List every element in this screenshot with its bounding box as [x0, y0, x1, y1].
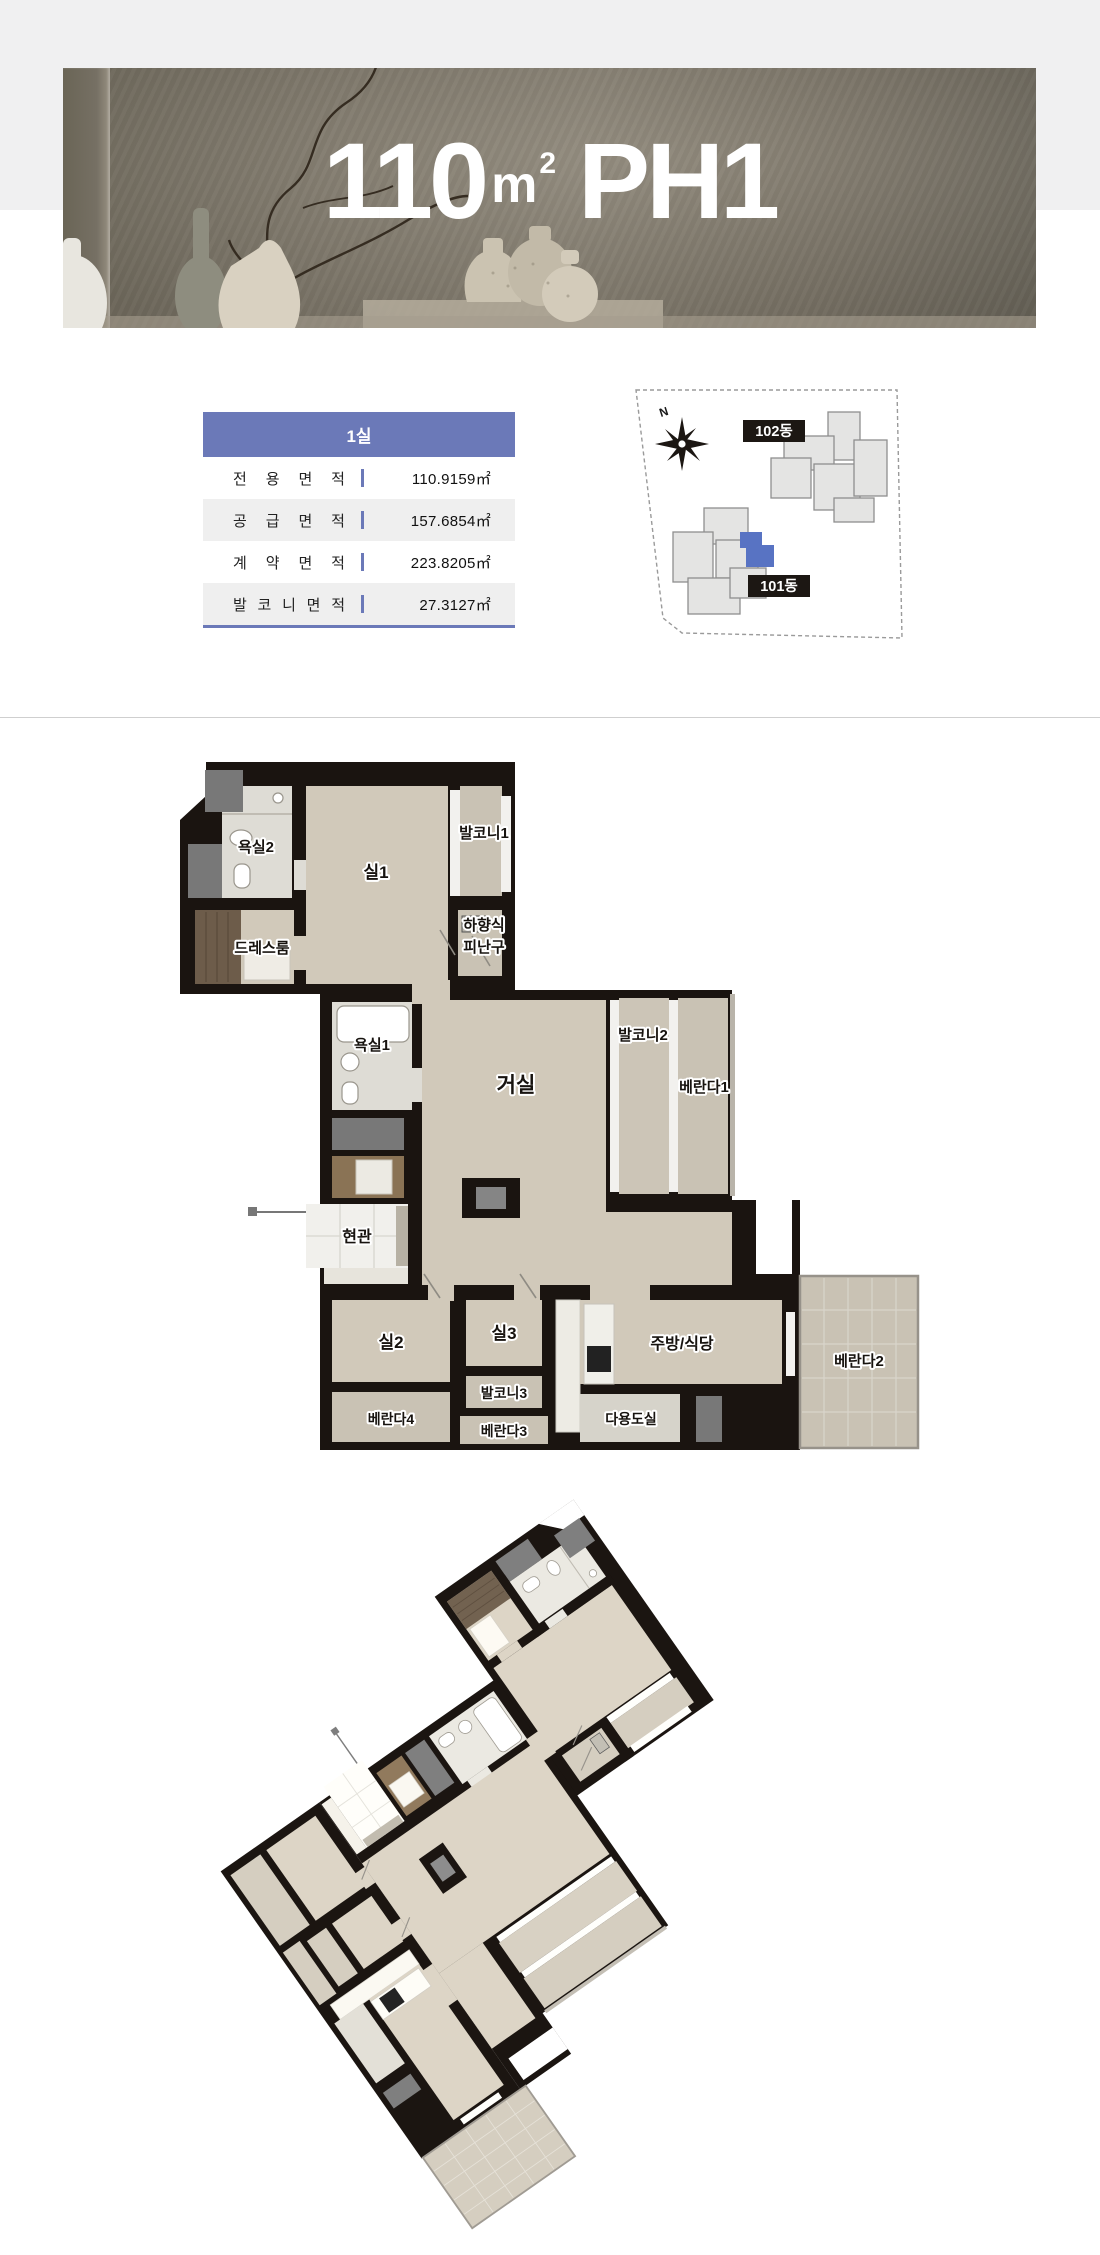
room-label-2: 발코니1: [459, 825, 509, 842]
table-row-supply-area: 공급면적 157.6854㎡: [203, 499, 515, 541]
room-label-16: 다용도실: [605, 1411, 657, 1427]
unit-type-name: PH1: [578, 127, 776, 235]
svg-text:102동: 102동: [755, 423, 793, 440]
unit-area-number: 110: [323, 127, 485, 235]
row-label: 발코니면적: [233, 594, 345, 615]
room-label-11: 실2: [378, 1333, 403, 1352]
row-label: 공급면적: [233, 510, 345, 531]
svg-text:101동: 101동: [760, 578, 798, 595]
building-label-102: 102동: [743, 420, 805, 442]
unit-title: 110 m2 PH1: [63, 68, 1036, 328]
room-label-17: 주방/식당: [650, 1335, 714, 1353]
room-label-10: 현관: [342, 1227, 372, 1246]
site-location-map: N 102동 101동: [628, 382, 913, 672]
room-label-9: 베란다1: [679, 1078, 729, 1096]
unit-banner: 110 m2 PH1: [63, 68, 1036, 328]
room-label-0: 욕실2: [238, 839, 274, 856]
row-value: 27.3127㎡: [364, 594, 491, 615]
compass-icon: N: [655, 404, 709, 471]
section-divider: [0, 717, 1100, 718]
floor-plan-3d-geometry: [162, 1500, 880, 2229]
room-label-13: 발코니3: [481, 1385, 528, 1401]
row-label: 계약면적: [233, 552, 345, 573]
room-label-3: 하향식: [463, 917, 504, 934]
unit-detail-page: 110 m2 PH1 1실 전용면적 110.9159㎡ 공급면적 157.68…: [0, 0, 1100, 2255]
room-label-7: 거실: [497, 1074, 536, 1097]
unit-area-unit: m2: [491, 152, 556, 206]
table-bottom-border: [203, 625, 515, 628]
row-value: 223.8205㎡: [364, 552, 491, 573]
row-label: 전용면적: [233, 468, 345, 489]
svg-text:N: N: [657, 404, 670, 420]
room-label-12: 실3: [491, 1324, 516, 1343]
area-info-table: 1실 전용면적 110.9159㎡ 공급면적 157.6854㎡ 계약면적 22…: [203, 412, 515, 628]
room-label-18: 베란다2: [834, 1352, 884, 1370]
room-label-5: 드레스룸: [234, 940, 289, 957]
floor-plan-3d-view: [140, 1452, 880, 2252]
room-label-1: 실1: [363, 863, 388, 882]
table-row-contract-area: 계약면적 223.8205㎡: [203, 541, 515, 583]
room-label-6: 욕실1: [354, 1037, 390, 1054]
table-header-room-count: 1실: [203, 412, 515, 457]
building-label-101: 101동: [748, 575, 810, 597]
room-label-8: 발코니2: [618, 1027, 668, 1044]
floor-plan-2d: 욕실2실1발코니1하향식피난구드레스룸욕실1거실발코니2베란다1현관실2실3발코…: [110, 740, 920, 1450]
row-value: 157.6854㎡: [364, 510, 491, 531]
table-row-exclusive-area: 전용면적 110.9159㎡: [203, 457, 515, 499]
room-label-14: 베란다4: [368, 1411, 415, 1427]
row-value: 110.9159㎡: [364, 468, 491, 489]
floor-plan-geometry: [180, 762, 918, 1450]
room-label-15: 베란다3: [481, 1423, 528, 1439]
room-label-4: 피난구: [463, 939, 505, 956]
table-row-balcony-area: 발코니면적 27.3127㎡: [203, 583, 515, 625]
